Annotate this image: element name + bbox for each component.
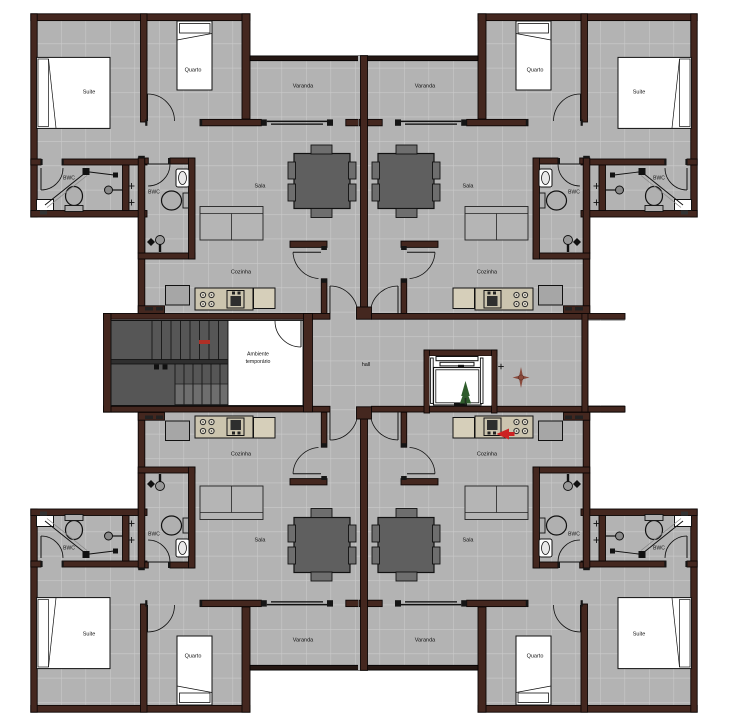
svg-text:Varanda: Varanda <box>415 637 436 643</box>
svg-text:Cozinha: Cozinha <box>231 269 252 275</box>
svg-text:Quarto: Quarto <box>527 67 544 73</box>
svg-text:hall: hall <box>362 362 371 368</box>
svg-text:temporário: temporário <box>246 359 271 365</box>
svg-text:Varanda: Varanda <box>293 637 314 643</box>
svg-text:BWC: BWC <box>568 189 580 195</box>
svg-text:BWC: BWC <box>63 175 75 181</box>
svg-text:Varanda: Varanda <box>415 83 436 89</box>
svg-text:Ambiente: Ambiente <box>247 351 269 357</box>
svg-text:Suite: Suite <box>83 631 96 637</box>
svg-text:Sala: Sala <box>462 537 474 543</box>
svg-text:Suite: Suite <box>83 89 96 95</box>
svg-text:Cozinha: Cozinha <box>477 451 498 457</box>
svg-text:Sala: Sala <box>254 537 266 543</box>
svg-text:Cozinha: Cozinha <box>231 451 252 457</box>
svg-text:Quarto: Quarto <box>527 653 544 659</box>
svg-text:BWC: BWC <box>63 545 75 551</box>
svg-text:BWC: BWC <box>148 189 160 195</box>
svg-text:Sala: Sala <box>254 183 266 189</box>
svg-text:Suite: Suite <box>633 631 646 637</box>
svg-text:Quarto: Quarto <box>185 653 202 659</box>
svg-text:Quarto: Quarto <box>185 67 202 73</box>
svg-text:BWC: BWC <box>653 175 665 181</box>
svg-text:Sala: Sala <box>462 183 474 189</box>
svg-text:BWC: BWC <box>148 531 160 537</box>
svg-text:Suite: Suite <box>633 89 646 95</box>
svg-text:Varanda: Varanda <box>293 83 314 89</box>
svg-text:BWC: BWC <box>568 531 580 537</box>
svg-text:Cozinha: Cozinha <box>477 269 498 275</box>
svg-text:BWC: BWC <box>653 545 665 551</box>
